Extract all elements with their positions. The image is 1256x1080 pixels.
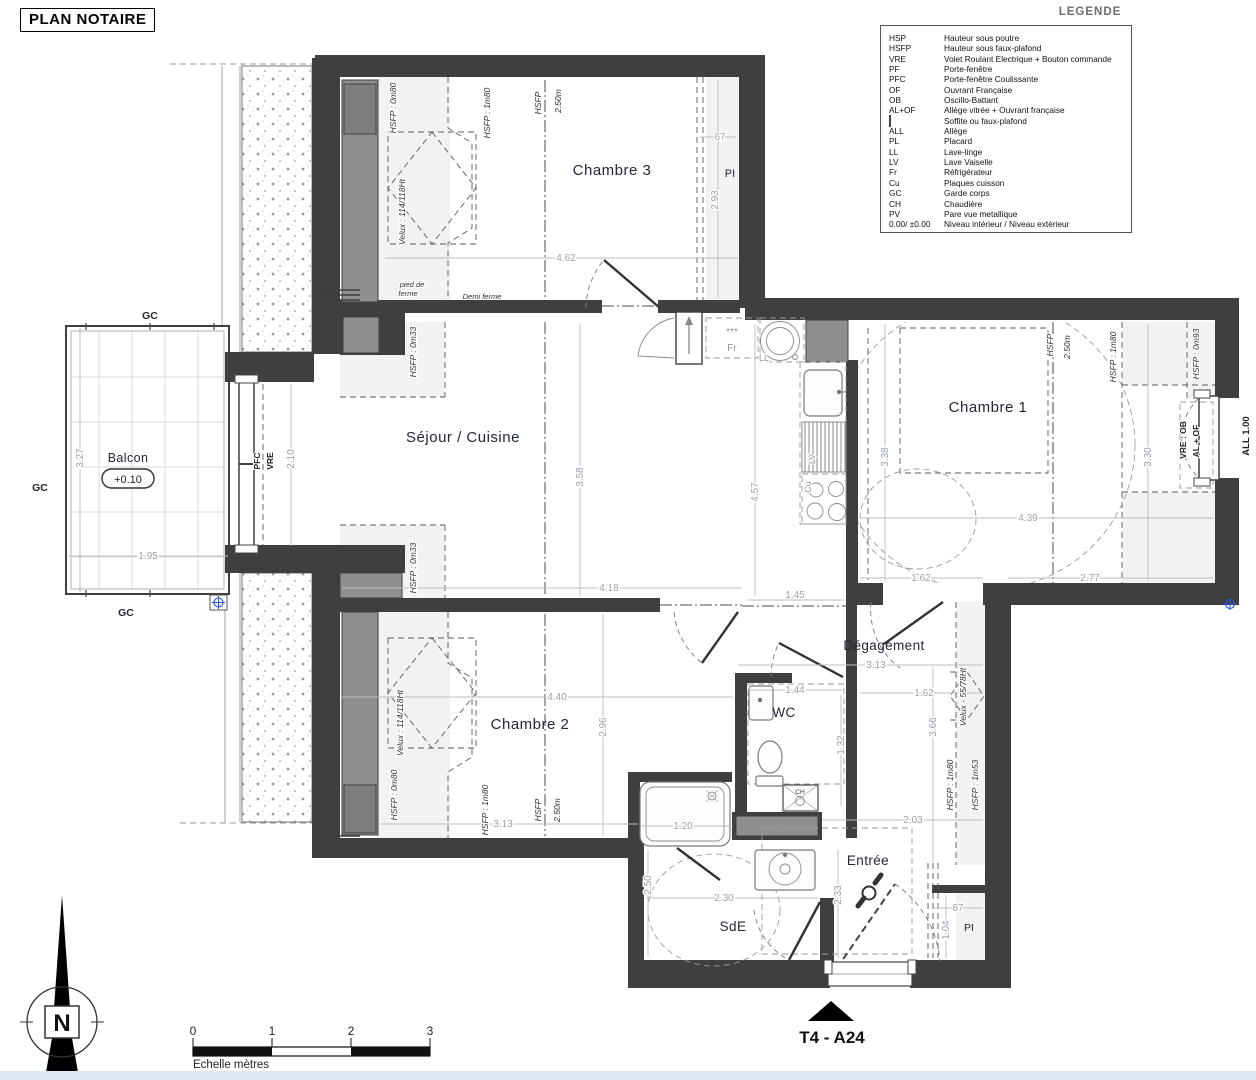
dim-label: 2.10 — [286, 449, 297, 469]
dim-label: 67 — [714, 132, 726, 143]
legend-abbr: LV — [889, 157, 944, 167]
dim-label: 1.20 — [673, 821, 693, 832]
dim-label: 4.57 — [750, 482, 761, 502]
legend-desc: Hauteur sous faux-plafond — [944, 43, 1041, 53]
toilet-icon — [758, 741, 782, 773]
unit-label: T4 - A24 — [799, 1028, 865, 1047]
floor-plan: 4.62 2.93 67 3.27 1.95 2.10 3.58 4.18 4.… — [0, 0, 1256, 1080]
dim-label: 1.04 — [941, 920, 952, 940]
sink-icon — [804, 370, 842, 416]
legend-abbr: OB — [889, 95, 944, 105]
legend-abbr: CH — [889, 199, 944, 209]
hsfp-label: HSFP : 1m80 — [482, 87, 492, 138]
legend-abbr: PF — [889, 64, 944, 74]
legend-row: AL+OFAllège vitrée + Ouvrant française — [889, 105, 1127, 115]
room-label-degagement: Dégagement — [843, 638, 924, 653]
scale-bar: 0 1 2 3 Echelle mètres — [190, 1024, 434, 1071]
legend-row: VREVolet Roulant Electrique + Bouton com… — [889, 54, 1127, 64]
legend-abbr: LL — [889, 147, 944, 157]
legend: HSPHauteur sous poutre HSFPHauteur sous … — [880, 25, 1132, 233]
dim-label: 4.39 — [1018, 513, 1038, 524]
hsfp-label: HSFP : 0m80 — [388, 82, 398, 133]
legend-desc: Lave Vaiselle — [944, 157, 993, 167]
dim-label: 2.93 — [710, 190, 721, 210]
hsfp-label: HSFP : 0m80 — [389, 769, 399, 820]
door-chambre3 — [604, 260, 660, 308]
legend-desc: Soffite ou faux-plafond — [944, 116, 1027, 126]
dim-label: 1.32 — [836, 735, 847, 755]
shower-screen — [677, 848, 720, 880]
dim-label: 1.95 — [138, 551, 158, 562]
dim-label: 2.33 — [833, 885, 844, 905]
fridge-label: Fr — [727, 343, 737, 354]
gc-label-top: GC — [142, 310, 158, 322]
legend-desc: Lave-linge — [944, 147, 982, 157]
dim-label: 3.66 — [928, 717, 939, 737]
dim-label: 67 — [952, 903, 964, 914]
legend-row: OBOscillo-Battant — [889, 95, 1127, 105]
room-label-sde: SdE — [720, 919, 747, 934]
dim-label: 4.18 — [599, 583, 619, 594]
legend-desc: Placard — [944, 136, 972, 146]
window-label: ALL 1.00 — [1241, 416, 1252, 455]
dim-label: 1.44 — [785, 685, 805, 696]
legend-desc: Ouvrant Française — [944, 85, 1012, 95]
soffit-hatch-swatch — [889, 115, 891, 127]
dim-label: 4.40 — [547, 692, 567, 703]
dim-label: 2.30 — [714, 893, 734, 904]
room-label-wc: WC — [772, 705, 795, 720]
hsfp-label: HSFP — [533, 798, 543, 821]
legend-row: LVLave Vaiselle — [889, 157, 1127, 167]
gc-label-bottom: GC — [118, 607, 134, 619]
legend-desc: Plaques cuisson — [944, 178, 1004, 188]
fan-symbol — [638, 318, 674, 358]
legend-row: PVPare vue metallique — [889, 209, 1127, 219]
truss-label: pied de — [399, 280, 425, 289]
hsfp-label: HSFP : 1m80 — [945, 759, 955, 810]
legend-desc: Garde corps — [944, 188, 990, 198]
legend-abbr: Fr — [889, 167, 944, 177]
legend-row: FrRéfrigérateur — [889, 167, 1127, 177]
closet-label-bottom: PI — [964, 922, 974, 934]
hsfp-label: HSFP — [533, 91, 543, 114]
legend-desc: Volet Roulant Electrique + Bouton comman… — [944, 54, 1112, 64]
dim-label: 3.27 — [75, 448, 86, 468]
hsfp-label: HSFP : 0m33 — [408, 542, 418, 593]
legend-abbr: Cu — [889, 178, 944, 188]
window-label: VRE : OB — [1178, 421, 1188, 459]
legend-desc: Porte-fenêtre Coulissante — [944, 74, 1038, 84]
scale-tick-3: 3 — [427, 1024, 434, 1038]
hsfp-label: 2.50m — [552, 798, 562, 823]
dim-label: 3.30 — [1143, 447, 1154, 467]
dim-label: 1.45 — [785, 590, 805, 601]
scale-tick-0: 0 — [190, 1024, 197, 1038]
legend-desc: Réfrigérateur — [944, 167, 992, 177]
legend-desc: Pare vue metallique — [944, 209, 1017, 219]
legend-desc: Allège vitrée + Ouvrant française — [944, 105, 1065, 115]
compass-north-letter: N — [53, 1010, 70, 1037]
legend-abbr: AL+OF — [889, 105, 944, 115]
north-compass: N — [20, 895, 104, 1078]
velux-label: Velux - 55/78Ht — [958, 667, 968, 726]
window-label: PFC — [252, 453, 262, 470]
legend-abbr: HSFP — [889, 43, 944, 53]
boiler-label: CH — [795, 789, 805, 796]
washer-label: LL — [759, 353, 769, 363]
legend-abbr: PL — [889, 136, 944, 146]
legend-desc: Niveau intérieur / Niveau extérieur — [944, 219, 1069, 229]
entrance-triangle-icon — [808, 1001, 854, 1021]
hsfp-label: HSFP : 1m80 — [1108, 331, 1118, 382]
stipple-strip-bottom — [242, 573, 312, 822]
hsfp-label: 2.50m — [1062, 335, 1072, 360]
truss-label: ferme — [398, 289, 417, 298]
door-wc — [779, 643, 843, 677]
room-label-balcon: Balcon — [108, 451, 149, 465]
scale-tick-1: 1 — [269, 1024, 276, 1038]
legend-abbr: ALL — [889, 126, 944, 136]
duct — [806, 320, 848, 362]
room-label-chambre3: Chambre 3 — [573, 162, 652, 179]
dim-label: 3.38 — [880, 447, 891, 467]
turning-circles — [648, 300, 1135, 966]
scale-caption: Echelle mètres — [193, 1059, 269, 1071]
dim-label: 3.58 — [575, 467, 586, 487]
hsfp-label: HSFP : 0m93 — [1191, 328, 1201, 379]
legend-row: HSPHauteur sous poutre — [889, 33, 1127, 43]
legend-row: LLLave-linge — [889, 147, 1127, 157]
balcony-level: +0.10 — [114, 474, 142, 486]
hsfp-label: HSFP — [1045, 333, 1055, 356]
alof-window — [1199, 396, 1219, 480]
dim-label: 3.13 — [493, 819, 513, 830]
room-label-chambre1: Chambre 1 — [949, 399, 1028, 416]
fridge-stars: *** — [726, 327, 738, 338]
dim-label: 1.62 — [914, 688, 934, 699]
stipple-strip-top — [242, 66, 312, 352]
truss-label: Demi ferme — [463, 292, 502, 301]
hob-label: Cu — [803, 481, 813, 493]
dim-label: 4.62 — [556, 253, 576, 264]
legend-row: CuPlaques cuisson — [889, 178, 1127, 188]
legend-row-swatch: Soffite ou faux-plafond — [889, 116, 1127, 126]
legend-abbr: 0.00/ ±0.00 — [889, 219, 944, 229]
window-label: VRE — [265, 452, 275, 470]
dim-label: 1.62 — [911, 573, 931, 584]
legend-row: ALLAllège — [889, 126, 1127, 136]
legend-title: LEGENDE — [1010, 6, 1170, 18]
dim-label: 3.13 — [866, 660, 886, 671]
velux-label: Velux : 114/118Ht — [395, 689, 405, 756]
hsfp-label: 2.50m — [553, 89, 563, 114]
velux-label: Velux : 114/118Ht — [397, 178, 407, 245]
unit-marker: T4 - A24 — [799, 1001, 865, 1047]
legend-row: PLPlacard — [889, 136, 1127, 146]
room-label-sejour: Séjour / Cuisine — [406, 429, 520, 446]
legend-abbr: VRE — [889, 54, 944, 64]
wc-basin — [749, 686, 773, 720]
page-edge-strip — [0, 1071, 1256, 1080]
hsfp-label: HSFP : 0m33 — [408, 326, 418, 377]
legend-abbr: PV — [889, 209, 944, 219]
legend-row: CHChaudière — [889, 199, 1127, 209]
legend-row: PFPorte-fenêtre — [889, 64, 1127, 74]
dim-label: 2.96 — [598, 717, 609, 737]
legend-row: OFOuvrant Française — [889, 85, 1127, 95]
legend-row: PFCPorte-fenêtre Coulissante — [889, 74, 1127, 84]
scale-tick-2: 2 — [348, 1024, 355, 1038]
legend-abbr: OF — [889, 85, 944, 95]
dishwasher-label: LV — [807, 454, 817, 464]
hsfp-label: HSFP : 1m53 — [970, 759, 980, 810]
legend-desc: Porte-fenêtre — [944, 64, 992, 74]
legend-desc: Chaudière — [944, 199, 982, 209]
room-label-entree: Entrée — [847, 853, 889, 868]
legend-desc: Oscillo-Battant — [944, 95, 998, 105]
window-label: AL + OF — [1191, 425, 1201, 458]
legend-row: HSFPHauteur sous faux-plafond — [889, 43, 1127, 53]
hsfp-label: HSFP : 1m80 — [480, 784, 490, 835]
room-label-chambre2: Chambre 2 — [491, 716, 570, 733]
compass-needle-top — [54, 895, 70, 1008]
dim-label: 2.50 — [643, 875, 654, 895]
legend-row: 0.00/ ±0.00Niveau intérieur / Niveau ext… — [889, 219, 1127, 229]
door-chambre2 — [702, 612, 738, 663]
legend-abbr: GC — [889, 188, 944, 198]
legend-abbr: PFC — [889, 74, 944, 84]
page-title: PLAN NOTAIRE — [20, 8, 155, 32]
gc-label-left: GC — [32, 482, 48, 494]
legend-desc: Allège — [944, 126, 967, 136]
dim-label: 2.77 — [1080, 573, 1100, 584]
dim-label: 2.03 — [903, 815, 923, 826]
legend-abbr: HSP — [889, 33, 944, 43]
legend-desc: Hauteur sous poutre — [944, 33, 1019, 43]
legend-row: GCGarde corps — [889, 188, 1127, 198]
closet-label-top: PI — [725, 168, 735, 180]
door-sde — [789, 902, 820, 960]
